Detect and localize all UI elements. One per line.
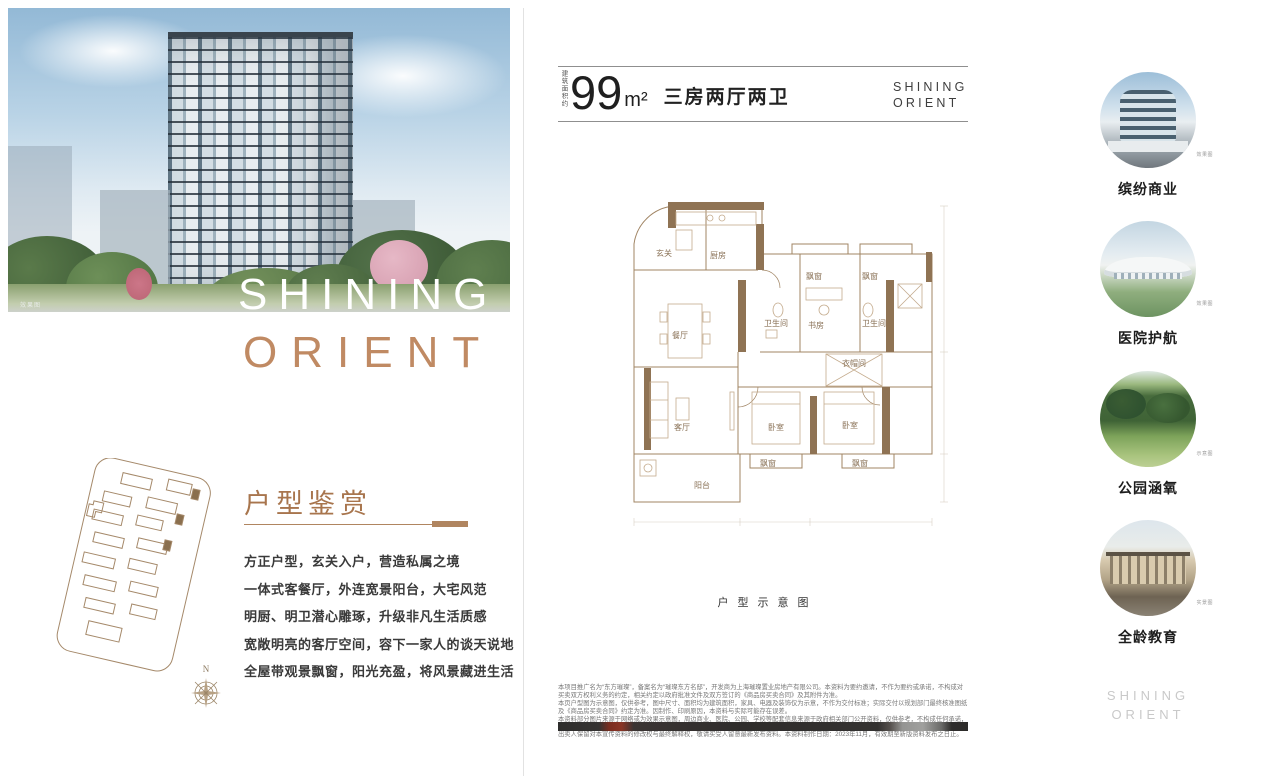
- hero-brand-line2: ORIENT: [243, 328, 493, 378]
- room-label-bay3: 飘窗: [760, 458, 776, 468]
- poi-item-hospital: 效果图 医院护航: [1100, 221, 1196, 348]
- room-label-cloak: 衣帽间: [842, 358, 866, 368]
- disclaimer-line: 本页户型图为示意图，仅供参考，图中尺寸、面积均为建筑面积，家具、电器及装饰仅为示…: [558, 700, 968, 716]
- room-label-bath2: 卫生间: [862, 318, 886, 328]
- site-plan-sketch: [36, 458, 236, 680]
- floor-plan-drawing: 玄关 厨房 飘窗 飘窗 卫生间 书房 卫生间 餐厅 衣帽间 客厅 卧室 卧室 飘…: [610, 192, 950, 532]
- floor-plan-caption: 户型示意图: [558, 594, 968, 610]
- poi-item-education: 实景图 全龄教育: [1100, 520, 1196, 647]
- bottom-photo-strip: [558, 722, 968, 731]
- selling-point-line: 方正户型，玄关入户，营造私属之境: [244, 548, 514, 576]
- poi-render-tag: 示意图: [1196, 450, 1213, 457]
- unit-layout-description: 三房两厅两卫: [664, 82, 790, 109]
- floor-plan-furniture: [640, 212, 922, 476]
- building-rendering-photo: 效果图: [8, 8, 510, 312]
- room-label-balcony: 阳台: [694, 480, 710, 490]
- person-figure: [126, 268, 152, 300]
- room-label-bay2: 飘窗: [862, 271, 878, 281]
- disclaimer-line: 本项目推广名为“东方璀璨”，备案名为“璀璨东方名邸”，开发商为上海璀璨置业房地产…: [558, 684, 968, 700]
- education-photo: [1100, 520, 1196, 616]
- area-value: 99: [570, 71, 622, 115]
- selling-point-line: 全屋带观景飘窗，阳光充盈，将风景藏进生活: [244, 658, 514, 686]
- room-label-study: 书房: [808, 320, 824, 330]
- poi-render-tag: 实景图: [1196, 599, 1213, 606]
- site-plan-group: [54, 458, 214, 674]
- selling-points-paragraph: 方正户型，玄关入户，营造私属之境 一体式客餐厅，外连宽景阳台，大宅风范 明厨、明…: [244, 548, 514, 686]
- poi-label-education: 全龄教育: [1100, 627, 1196, 647]
- room-label-dining: 餐厅: [672, 331, 688, 340]
- compass-rose-icon: [189, 676, 223, 710]
- room-label-bath1: 卫生间: [764, 318, 788, 328]
- poi-render-tag: 效果图: [1196, 300, 1213, 307]
- poi-circle: 示意图: [1100, 371, 1196, 467]
- room-label-living: 客厅: [674, 422, 690, 432]
- room-label-entry: 玄关: [656, 248, 672, 258]
- disclaimer-line: 出卖人保留对本宣传资料的修改权与最终解释权，敬请买受人留意最新发布资料。本资料制…: [558, 731, 968, 739]
- room-label-bay4: 飘窗: [852, 458, 868, 468]
- selling-point-line: 一体式客餐厅，外连宽景阳台，大宅风范: [244, 576, 514, 604]
- footer-brand: SHINING ORIENT: [1088, 686, 1208, 724]
- hero-brand-line1: SHINING: [238, 270, 498, 320]
- poi-render-tag: 效果图: [1196, 151, 1213, 158]
- selling-point-line: 明厨、明卫潜心雕琢，升级非凡生活质感: [244, 603, 514, 631]
- footer-brand-line1: SHINING: [1088, 686, 1208, 705]
- hospital-photo: [1100, 221, 1196, 317]
- room-label-bedroom1: 卧室: [768, 422, 784, 432]
- vertical-divider: [523, 8, 524, 776]
- poi-circle: 效果图: [1100, 72, 1196, 168]
- photo-render-tag: 效果图: [20, 300, 41, 309]
- header-brand: SHINING ORIENT: [893, 79, 968, 111]
- header-rule-bottom: [558, 121, 968, 122]
- poi-item-commercial: 效果图 缤纷商业: [1100, 72, 1196, 199]
- poi-circle: 实景图: [1100, 520, 1196, 616]
- room-label-kitchen: 厨房: [710, 250, 726, 260]
- header-brand-line1: SHINING: [893, 79, 968, 95]
- park-photo: [1100, 371, 1196, 467]
- poi-item-park: 示意图 公园涵氧: [1100, 371, 1196, 498]
- section-title: 户型鉴赏: [244, 482, 372, 521]
- unit-area-heading: 建筑面积约 99 m² 三房两厅两卫: [558, 70, 790, 115]
- legal-disclaimer: 本项目推广名为“东方璀璨”，备案名为“璀璨东方名邸”，开发商为上海璀璨置业房地产…: [558, 684, 968, 739]
- brochure-page: 效果图 SHINING ORIENT 户型鉴赏 方正户型，玄关入户，营造私属之境…: [0, 0, 1280, 784]
- poi-label-commercial: 缤纷商业: [1100, 179, 1196, 199]
- footer-brand-line2: ORIENT: [1088, 705, 1208, 724]
- room-label-bedroom2: 卧室: [842, 420, 858, 430]
- poi-label-park: 公园涵氧: [1100, 478, 1196, 498]
- poi-label-hospital: 医院护航: [1100, 328, 1196, 348]
- floor-plan-walls: [644, 202, 932, 454]
- commercial-photo: [1100, 72, 1196, 168]
- section-rule-endbar: [432, 521, 468, 527]
- area-unit: m²: [624, 89, 647, 112]
- area-prefix-label: 建筑面积约: [558, 70, 568, 110]
- highrise-tower: [168, 32, 353, 294]
- room-label-bay1: 飘窗: [806, 271, 822, 281]
- poi-circle: 效果图: [1100, 221, 1196, 317]
- selling-point-line: 宽敞明亮的客厅空间，容下一家人的谈天说地: [244, 631, 514, 659]
- header-brand-line2: ORIENT: [893, 95, 968, 111]
